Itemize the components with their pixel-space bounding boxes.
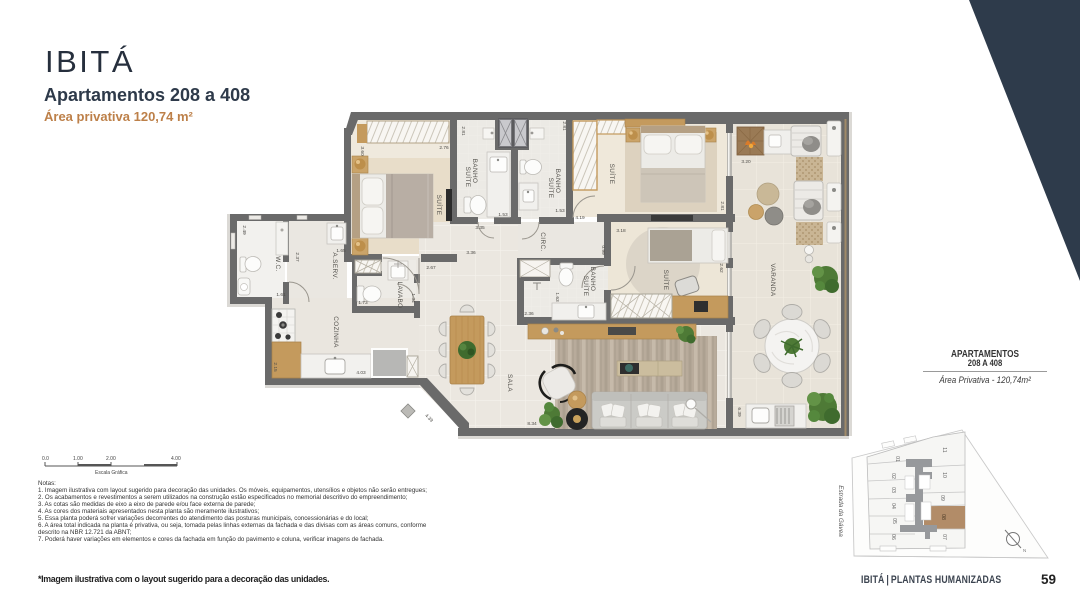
- svg-text:4.03: 4.03: [356, 370, 366, 376]
- svg-text:2.67: 2.67: [426, 265, 436, 271]
- svg-text:2.37: 2.37: [294, 252, 300, 262]
- svg-text:SUÍTE: SUÍTE: [464, 167, 473, 188]
- svg-text:SUÍTE: SUÍTE: [582, 276, 591, 297]
- svg-text:04: 04: [890, 503, 896, 509]
- svg-text:3.36: 3.36: [466, 250, 476, 256]
- svg-text:3.20: 3.20: [741, 159, 751, 165]
- svg-text:3.18: 3.18: [616, 228, 626, 234]
- svg-text:2.76: 2.76: [439, 145, 449, 151]
- svg-text:2.81: 2.81: [460, 126, 466, 136]
- svg-text:1.00: 1.00: [73, 456, 83, 462]
- svg-text:10: 10: [941, 472, 947, 478]
- svg-text:2.81: 2.81: [719, 201, 725, 211]
- svg-text:1.65: 1.65: [336, 248, 346, 254]
- svg-text:4.19: 4.19: [575, 215, 585, 221]
- svg-text:2.36: 2.36: [524, 311, 534, 317]
- svg-text:LAVABO: LAVABO: [396, 281, 403, 308]
- svg-text:1.34: 1.34: [410, 293, 416, 303]
- svg-text:06: 06: [890, 534, 896, 540]
- svg-text:SUÍTE: SUÍTE: [608, 164, 617, 185]
- svg-text:Escala Gráfica: Escala Gráfica: [95, 470, 128, 476]
- svg-text:BANHO: BANHO: [554, 169, 561, 194]
- svg-text:01: 01: [894, 456, 900, 462]
- svg-text:4.00: 4.00: [171, 456, 181, 462]
- svg-text:W.C.: W.C.: [274, 256, 281, 271]
- svg-text:1.63: 1.63: [554, 292, 560, 302]
- svg-text:1.61: 1.61: [276, 292, 286, 298]
- svg-text:2.00: 2.00: [106, 456, 116, 462]
- svg-text:8.34: 8.34: [527, 421, 537, 427]
- svg-text:09: 09: [939, 495, 945, 501]
- svg-text:1.73: 1.73: [358, 300, 368, 306]
- svg-text:11: 11: [941, 447, 947, 452]
- svg-text:1.53: 1.53: [498, 212, 508, 218]
- svg-text:A.SERV.: A.SERV.: [331, 252, 338, 279]
- svg-text:SALA: SALA: [506, 374, 513, 392]
- svg-text:08: 08: [940, 514, 946, 520]
- svg-text:BANHO: BANHO: [471, 159, 478, 184]
- svg-text:SUÍTE: SUÍTE: [547, 178, 556, 199]
- svg-text:07: 07: [941, 534, 947, 540]
- svg-text:COZINHA: COZINHA: [332, 316, 339, 348]
- svg-text:02: 02: [890, 473, 896, 479]
- svg-text:2.62: 2.62: [718, 263, 724, 273]
- svg-text:0.0: 0.0: [42, 456, 49, 462]
- svg-text:05: 05: [891, 518, 897, 524]
- svg-text:2.15: 2.15: [272, 362, 278, 372]
- svg-text:SUÍTE: SUÍTE: [435, 195, 444, 216]
- svg-text:0.99: 0.99: [600, 245, 606, 255]
- svg-text:2.49: 2.49: [241, 225, 247, 235]
- svg-text:4.39: 4.39: [423, 413, 434, 424]
- svg-text:2.81: 2.81: [561, 121, 567, 131]
- svg-text:BANHO: BANHO: [589, 267, 596, 292]
- svg-text:VARANDA: VARANDA: [769, 263, 776, 297]
- svg-text:CIRC.: CIRC.: [539, 232, 546, 251]
- svg-text:6.39: 6.39: [736, 407, 742, 417]
- svg-text:3.35: 3.35: [475, 225, 485, 231]
- svg-text:SUÍTE: SUÍTE: [662, 270, 671, 291]
- svg-text:1.53: 1.53: [555, 208, 565, 214]
- svg-text:N: N: [1023, 548, 1026, 553]
- svg-text:Estrada da Gávea: Estrada da Gávea: [837, 485, 844, 537]
- svg-text:03: 03: [890, 487, 896, 493]
- svg-text:3.60: 3.60: [359, 146, 365, 156]
